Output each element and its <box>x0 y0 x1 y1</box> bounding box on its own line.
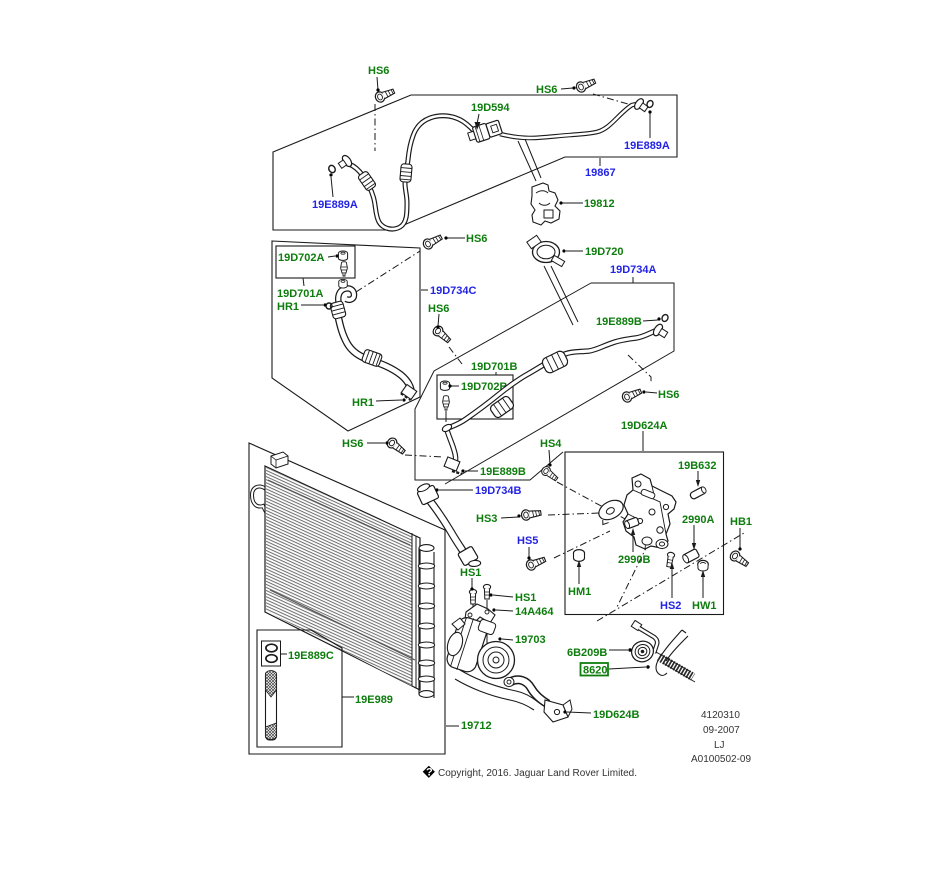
svg-text:19E889A: 19E889A <box>624 140 670 152</box>
svg-text:HS1: HS1 <box>515 592 536 604</box>
svg-text:HS6: HS6 <box>466 233 487 245</box>
svg-text:19812: 19812 <box>584 198 615 210</box>
svg-text:HS6: HS6 <box>368 65 389 77</box>
svg-text:HS5: HS5 <box>517 535 538 547</box>
svg-text:2990B: 2990B <box>618 554 650 566</box>
svg-text:19E989: 19E989 <box>355 694 393 706</box>
svg-text:6B209B: 6B209B <box>567 647 607 659</box>
svg-text:HS6: HS6 <box>342 438 363 450</box>
svg-text:19D734A: 19D734A <box>610 264 657 276</box>
svg-text:09-2007: 09-2007 <box>703 725 740 736</box>
svg-text:19E889B: 19E889B <box>480 466 526 478</box>
svg-text:?: ? <box>426 766 433 778</box>
svg-text:19D701B: 19D701B <box>471 361 518 373</box>
svg-text:HM1: HM1 <box>568 586 591 598</box>
svg-text:19D624B: 19D624B <box>593 709 640 721</box>
svg-text:HS1: HS1 <box>460 567 481 579</box>
svg-text:HS3: HS3 <box>476 513 497 525</box>
svg-text:HB1: HB1 <box>730 516 752 528</box>
svg-text:4120310: 4120310 <box>701 710 740 721</box>
svg-text:19703: 19703 <box>515 634 546 646</box>
svg-text:19E889A: 19E889A <box>312 199 358 211</box>
svg-text:HS4: HS4 <box>540 438 562 450</box>
svg-text:HS6: HS6 <box>536 84 557 96</box>
svg-text:19B632: 19B632 <box>678 460 717 472</box>
svg-text:8620: 8620 <box>583 665 607 677</box>
svg-text:HW1: HW1 <box>692 600 716 612</box>
svg-text:19D734C: 19D734C <box>430 285 477 297</box>
svg-text:LJ: LJ <box>714 740 725 751</box>
svg-text:19E889B: 19E889B <box>596 316 642 328</box>
svg-text:19712: 19712 <box>461 720 492 732</box>
svg-text:19E889C: 19E889C <box>288 650 334 662</box>
svg-text:HS2: HS2 <box>660 600 681 612</box>
svg-text:19D702A: 19D702A <box>278 252 325 264</box>
svg-text:19D701A: 19D701A <box>277 288 324 300</box>
svg-text:19D720: 19D720 <box>585 246 624 258</box>
svg-text:14A464: 14A464 <box>515 606 554 618</box>
svg-text:A0100502-09: A0100502-09 <box>691 754 751 765</box>
svg-text:Copyright, 2016. Jaguar Land R: Copyright, 2016. Jaguar Land Rover Limit… <box>438 768 637 779</box>
svg-text:19D594: 19D594 <box>471 102 510 114</box>
svg-text:HR1: HR1 <box>352 397 374 409</box>
svg-text:HS6: HS6 <box>428 303 449 315</box>
svg-text:2990A: 2990A <box>682 514 714 526</box>
svg-text:HS6: HS6 <box>658 389 679 401</box>
svg-text:HR1: HR1 <box>277 301 299 313</box>
svg-text:19D734B: 19D734B <box>475 485 522 497</box>
svg-text:19867: 19867 <box>585 167 616 179</box>
svg-text:19D624A: 19D624A <box>621 420 668 432</box>
